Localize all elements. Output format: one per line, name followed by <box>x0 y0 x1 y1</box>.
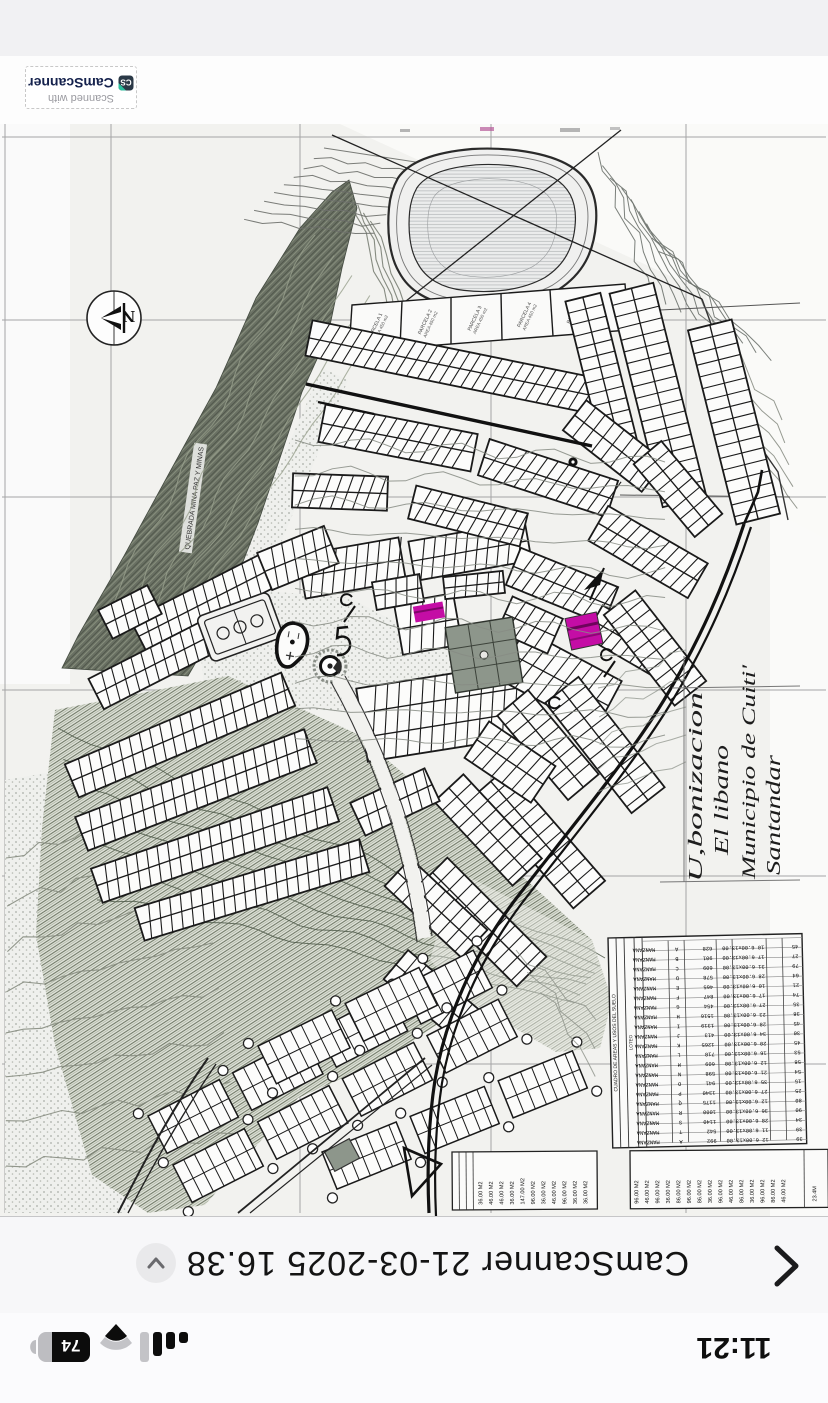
svg-text:90: 90 <box>795 1106 802 1112</box>
svg-text:1319: 1319 <box>701 1022 714 1028</box>
svg-text:21: 21 <box>793 981 800 987</box>
svg-text:36.00 M2: 36.00 M2 <box>666 1180 672 1203</box>
svg-text:45: 45 <box>793 1020 800 1026</box>
svg-text:847: 847 <box>704 993 714 999</box>
svg-text:46.00 M2: 46.00 M2 <box>552 1181 558 1204</box>
svg-text:36.00 M2: 36.00 M2 <box>510 1181 516 1204</box>
svg-text:1140: 1140 <box>703 1118 716 1124</box>
svg-text:413: 413 <box>704 1031 714 1037</box>
svg-text:1000: 1000 <box>703 1108 716 1114</box>
svg-text:MANZANA: MANZANA <box>634 1042 658 1049</box>
svg-text:39: 39 <box>796 1135 803 1141</box>
svg-text:12 6.00x13.00: 12 6.00x13.00 <box>726 1136 768 1143</box>
svg-text:MANZANA: MANZANA <box>634 1033 658 1040</box>
svg-text:F: F <box>676 994 679 1000</box>
svg-text:96.00 M2: 96.00 M2 <box>687 1180 693 1203</box>
svg-text:53: 53 <box>794 1049 801 1055</box>
svg-text:31 6.00x13.00: 31 6.00x13.00 <box>723 963 765 970</box>
svg-text:N: N <box>678 1071 681 1077</box>
svg-text:MANZANA: MANZANA <box>633 1004 657 1011</box>
svg-text:45: 45 <box>792 943 799 949</box>
svg-text:MANZANA: MANZANA <box>636 1138 660 1145</box>
svg-text:609: 609 <box>703 964 713 970</box>
svg-text:901: 901 <box>703 954 713 960</box>
svg-text:28 6.00x13.00: 28 6.00x13.00 <box>726 1117 768 1124</box>
svg-text:15: 15 <box>795 1078 802 1084</box>
svg-text:N: N <box>122 307 135 326</box>
svg-text:36.00 M2: 36.00 M2 <box>478 1181 484 1204</box>
svg-text:80: 80 <box>795 1097 802 1103</box>
svg-text:28 6.00x13.00: 28 6.00x13.00 <box>724 1021 766 1028</box>
svg-text:I: I <box>677 1023 680 1029</box>
svg-text:36.00 M2: 36.00 M2 <box>541 1181 547 1204</box>
svg-text:38: 38 <box>793 1010 800 1016</box>
svg-text:96.00 M2: 96.00 M2 <box>655 1180 661 1203</box>
svg-text:36.00 M2: 36.00 M2 <box>573 1181 579 1204</box>
svg-text:E: E <box>676 984 679 990</box>
svg-text:12 6.00x13.00: 12 6.00x13.00 <box>725 1059 767 1066</box>
svg-text:46.00 M2: 46.00 M2 <box>781 1179 787 1202</box>
svg-text:454: 454 <box>704 1003 714 1009</box>
svg-text:992: 992 <box>707 1137 717 1143</box>
svg-text:17 6.00x13.00: 17 6.00x13.00 <box>723 992 765 999</box>
svg-text:C: C <box>675 965 678 971</box>
svg-text:23 6.00x13.00: 23 6.00x13.00 <box>724 1011 766 1018</box>
svg-text:46.00 M2: 46.00 M2 <box>489 1181 495 1204</box>
svg-text:MANZANA: MANZANA <box>632 946 656 953</box>
svg-text:MANZANA: MANZANA <box>632 975 656 982</box>
svg-text:MANZANA: MANZANA <box>635 1081 659 1088</box>
svg-text:M: M <box>678 1061 681 1067</box>
svg-text:86.00 M2: 86.00 M2 <box>739 1180 745 1203</box>
svg-text:MANZANA: MANZANA <box>636 1110 660 1117</box>
svg-text:16 6.00x13.00: 16 6.00x13.00 <box>725 1049 767 1056</box>
svg-text:MANZANA: MANZANA <box>633 1013 657 1020</box>
svg-text:MANZANA: MANZANA <box>636 1119 660 1126</box>
svg-text:O: O <box>678 1080 681 1086</box>
svg-text:86.00 M2: 86.00 M2 <box>771 1179 777 1202</box>
svg-text:36 6.00x13.00: 36 6.00x13.00 <box>726 1107 768 1114</box>
svg-text:10 6.00x13.00: 10 6.00x13.00 <box>722 944 764 951</box>
svg-text:1265: 1265 <box>701 1041 714 1047</box>
svg-text:Q: Q <box>678 1099 681 1105</box>
svg-text:MANZANA: MANZANA <box>632 956 656 963</box>
svg-text:MANZANA: MANZANA <box>634 1023 658 1030</box>
svg-text:64: 64 <box>792 972 799 978</box>
svg-text:598: 598 <box>705 1070 715 1076</box>
svg-text:MANZANA: MANZANA <box>634 1052 658 1059</box>
svg-text:MANZANA: MANZANA <box>636 1129 660 1136</box>
svg-text:23.4M: 23.4M <box>812 1186 818 1202</box>
svg-text:628: 628 <box>702 945 712 951</box>
svg-text:96.00 M2: 96.00 M2 <box>531 1181 537 1204</box>
svg-text:45: 45 <box>794 1039 801 1045</box>
svg-text:36.00 M2: 36.00 M2 <box>708 1180 714 1203</box>
svg-text:H: H <box>676 1013 679 1019</box>
svg-text:U,bonizacion: U,bonizacion <box>685 692 707 882</box>
svg-text:609: 609 <box>705 1060 715 1066</box>
svg-text:46.00 M2: 46.00 M2 <box>499 1181 505 1204</box>
svg-text:1516: 1516 <box>701 1012 714 1018</box>
svg-text:MANZANA: MANZANA <box>633 985 657 992</box>
svg-text:25: 25 <box>795 1087 802 1093</box>
svg-text:S: S <box>679 1119 682 1125</box>
svg-text:96.00 M2: 96.00 M2 <box>562 1181 568 1204</box>
svg-text:36.00 M2: 36.00 M2 <box>583 1181 589 1204</box>
svg-text:96.00 M2: 96.00 M2 <box>634 1180 640 1203</box>
svg-text:46.00 M2: 46.00 M2 <box>729 1180 735 1203</box>
svg-text:J: J <box>677 1032 680 1038</box>
svg-text:79: 79 <box>792 962 799 968</box>
svg-text:1340: 1340 <box>703 1089 716 1095</box>
svg-text:17 6.00x13.00: 17 6.00x13.00 <box>722 953 764 960</box>
svg-text:147.00 M2: 147.00 M2 <box>520 1178 526 1204</box>
svg-text:10 6.00x13.00: 10 6.00x13.00 <box>723 982 765 989</box>
svg-text:36.00 M2: 36.00 M2 <box>750 1180 756 1203</box>
svg-text:96.00 M2: 96.00 M2 <box>718 1180 724 1203</box>
svg-text:MANZANA: MANZANA <box>634 1062 658 1069</box>
svg-text:1175: 1175 <box>703 1099 716 1105</box>
svg-text:54: 54 <box>795 1068 802 1074</box>
svg-text:28 6.00x13.00: 28 6.00x13.00 <box>723 973 765 980</box>
svg-text:30: 30 <box>794 1029 801 1035</box>
svg-text:27: 27 <box>792 952 799 958</box>
svg-text:MANZANA: MANZANA <box>635 1100 659 1107</box>
svg-text:MANZANA: MANZANA <box>635 1071 659 1078</box>
svg-text:MANZANA: MANZANA <box>633 994 657 1001</box>
svg-text:MANZANA: MANZANA <box>632 965 656 972</box>
svg-text:Santandar: Santandar <box>763 755 785 875</box>
svg-text:21 6.00x13.00: 21 6.00x13.00 <box>725 1069 767 1076</box>
svg-text:27 6.00x13.00: 27 6.00x13.00 <box>725 1088 767 1095</box>
svg-text:LOTEO: LOTEO <box>628 1034 633 1050</box>
svg-text:G: G <box>676 1003 679 1009</box>
svg-text:11 6.00x13.00: 11 6.00x13.00 <box>726 1126 768 1133</box>
svg-text:P: P <box>678 1090 681 1096</box>
svg-text:465: 465 <box>703 983 713 989</box>
svg-text:718: 718 <box>705 1051 715 1057</box>
svg-text:58: 58 <box>794 1058 801 1064</box>
svg-text:96.00 M2: 96.00 M2 <box>760 1179 766 1202</box>
svg-text:D: D <box>676 975 679 981</box>
svg-text:12 6.00x13.00: 12 6.00x13.00 <box>726 1098 768 1105</box>
svg-text:941: 941 <box>706 1080 716 1086</box>
svg-text:39: 39 <box>796 1126 803 1132</box>
svg-text:27 6.00x13.00: 27 6.00x13.00 <box>723 1001 765 1008</box>
svg-text:74: 74 <box>793 991 800 997</box>
svg-text:Municipio de Cuiti': Municipio de Cuiti' <box>739 664 760 881</box>
svg-text:35 6.00x13.00: 35 6.00x13.00 <box>725 1078 767 1085</box>
svg-text:578: 578 <box>703 974 713 980</box>
svg-text:35: 35 <box>793 1001 800 1007</box>
svg-text:542: 542 <box>707 1128 717 1134</box>
svg-text:74: 74 <box>61 1336 80 1355</box>
svg-text:86.00 M2: 86.00 M2 <box>676 1180 682 1203</box>
svg-text:86.00 M2: 86.00 M2 <box>697 1180 703 1203</box>
svg-text:34 6.00x13.00: 34 6.00x13.00 <box>724 1030 766 1037</box>
svg-text:34: 34 <box>796 1116 803 1122</box>
svg-text:MANZANA: MANZANA <box>635 1090 659 1097</box>
svg-text:20 6.00x13.00: 20 6.00x13.00 <box>724 1040 766 1047</box>
svg-text:L: L <box>677 1051 680 1057</box>
svg-text:46.00 M2: 46.00 M2 <box>645 1180 651 1203</box>
svg-text:El libano: El libano <box>711 745 733 856</box>
